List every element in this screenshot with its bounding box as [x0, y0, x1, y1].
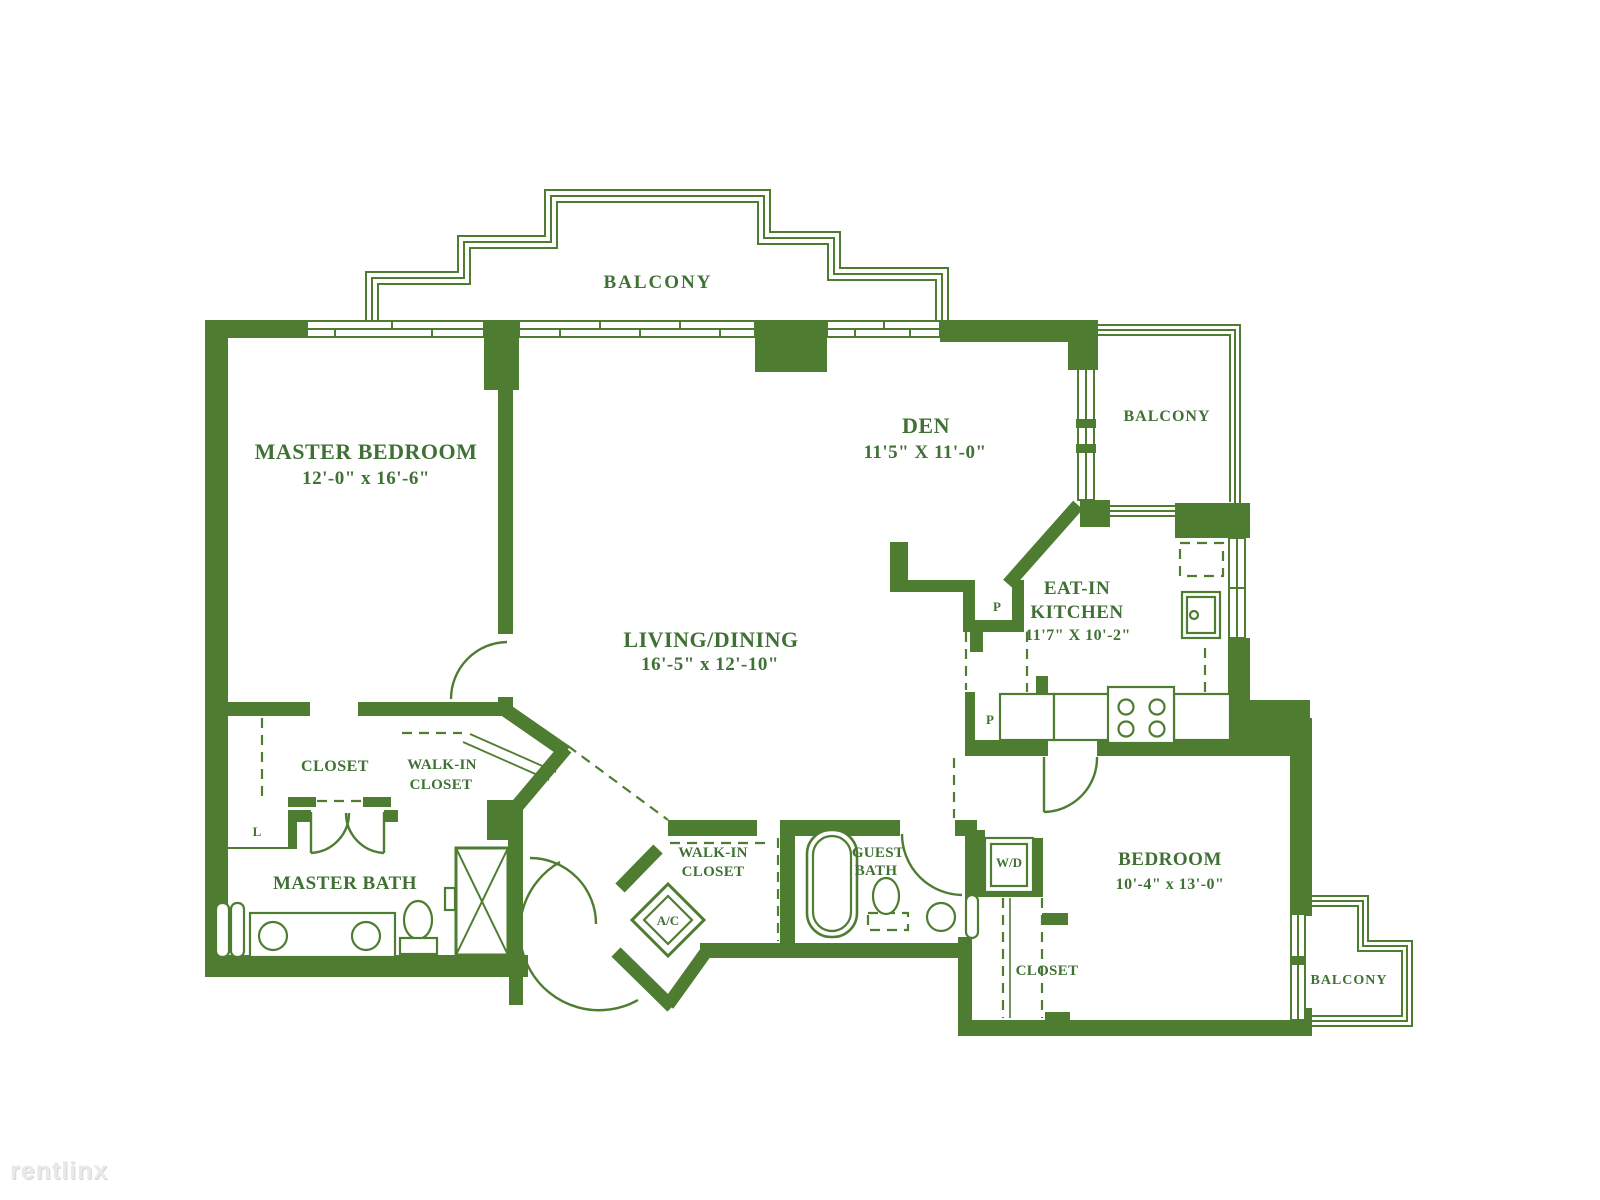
- living-dining-label: LIVING/DINING: [623, 627, 798, 652]
- stove: [1108, 687, 1174, 743]
- hall-wic-label-line1: WALK-IN: [678, 845, 748, 861]
- top-balcony-label: BALCONY: [603, 272, 712, 293]
- den-label: DEN: [902, 413, 950, 438]
- kitchen-label-line1: EAT-IN: [1044, 578, 1110, 599]
- bedroom-label: BEDROOM: [1118, 849, 1222, 870]
- linen-label: L: [253, 824, 262, 839]
- master-bedroom-door: [451, 642, 507, 699]
- hall-wic-label-line2: CLOSET: [682, 864, 745, 880]
- master-toilet: [404, 901, 432, 939]
- guest-bath-door: [902, 834, 962, 895]
- kitchen-label-line2: KITCHEN: [1030, 602, 1123, 623]
- bedroom-balcony-label: BALCONY: [1310, 973, 1387, 988]
- kitchen-dims: 11'7" X 10'-2": [1025, 627, 1131, 644]
- master-bath-label: MASTER BATH: [273, 873, 417, 894]
- kitchen-counter: [1000, 694, 1054, 740]
- hall-door: [530, 858, 596, 924]
- guest-bath-label-line2: BATH: [855, 863, 898, 879]
- guest-toilet: [873, 878, 899, 914]
- master-sink-right: [352, 922, 380, 950]
- pocket-door: [966, 895, 978, 938]
- rentlinx-watermark: rentlinx: [10, 1157, 108, 1186]
- bedroom-closet-label: CLOSET: [1016, 963, 1079, 979]
- master-wic-label-line2: CLOSET: [410, 777, 473, 793]
- window-kitchen: [1229, 538, 1245, 638]
- window-den: [827, 321, 940, 337]
- guest-sink: [927, 903, 955, 931]
- window-master-bedroom: [307, 321, 484, 337]
- living-dining-dims: 16'-5" x 12'-10": [641, 654, 779, 675]
- bedroom-balcony-railing: [1312, 896, 1412, 1026]
- master-bath-double-door: [311, 813, 349, 853]
- master-bedroom-label: MASTER BEDROOM: [255, 439, 478, 464]
- ac-label: A/C: [657, 913, 679, 928]
- den-dims: 11'5" X 11'-0": [863, 442, 986, 463]
- master-sink-left: [259, 922, 287, 950]
- floorplan-drawing: BALCONY BALCONY BALCONY MASTER BEDROOM 1…: [0, 0, 1600, 1200]
- bedroom-balcony-door: [1291, 914, 1305, 1020]
- master-closet-label: CLOSET: [301, 758, 369, 775]
- washer-dryer-label: W/D: [996, 855, 1022, 870]
- floorplan-page: BALCONY BALCONY BALCONY MASTER BEDROOM 1…: [0, 0, 1600, 1200]
- bedroom-door: [1044, 757, 1097, 812]
- bedroom-dims: 10'-4" x 13'-0": [1116, 876, 1225, 893]
- window-living-left: [519, 321, 755, 337]
- pantry-lower-label: P: [986, 712, 994, 727]
- guest-bath-label-line1: GUEST: [852, 845, 904, 861]
- top-balcony-railing: [366, 190, 948, 327]
- pantry-upper-label: P: [993, 599, 1001, 614]
- master-bedroom-dims: 12'-0" x 16'-6": [302, 468, 430, 489]
- master-wic-label-line1: WALK-IN: [407, 757, 477, 773]
- den-balcony-label: BALCONY: [1123, 408, 1210, 425]
- master-tub: [216, 903, 229, 957]
